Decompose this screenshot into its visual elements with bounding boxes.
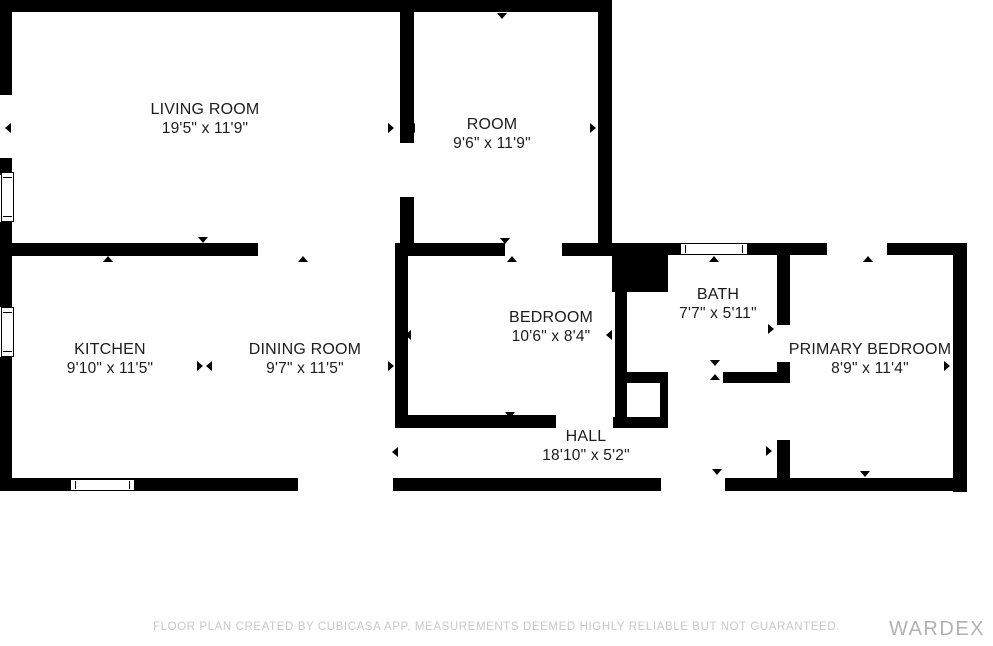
door-marker xyxy=(863,256,873,262)
room-dimensions: 9'10" x 11'5" xyxy=(20,359,200,378)
door-marker xyxy=(710,374,720,380)
room-label-bath: BATH 7'7" x 5'11" xyxy=(648,285,788,323)
door-marker xyxy=(497,13,507,19)
room-name: KITCHEN xyxy=(20,340,200,359)
room-name: PRIMARY BEDROOM xyxy=(782,340,958,359)
wall-room-right xyxy=(598,0,612,256)
door-marker xyxy=(507,256,517,262)
room-dimensions: 7'7" x 5'11" xyxy=(648,304,788,323)
room-label-room: ROOM 9'6" x 11'9" xyxy=(417,115,567,153)
room-label-kitchen: KITCHEN 9'10" x 11'5" xyxy=(20,340,200,378)
door-marker xyxy=(103,256,113,262)
door-marker xyxy=(766,446,772,456)
door-marker xyxy=(409,123,415,133)
door-marker xyxy=(298,256,308,262)
wall-left-segment xyxy=(0,222,12,307)
room-dimensions: 18'10" x 5'2" xyxy=(496,446,676,465)
door-marker xyxy=(5,123,11,133)
floor-plan: LIVING ROOM 19'5" x 11'9" ROOM 9'6" x 11… xyxy=(0,0,993,646)
room-name: HALL xyxy=(496,427,676,446)
room-label-hall: HALL 18'10" x 5'2" xyxy=(496,427,676,465)
window-living-left-upper xyxy=(1,172,14,222)
wall-left-segment xyxy=(0,0,12,95)
door-marker xyxy=(712,469,722,475)
wall-top xyxy=(0,0,612,12)
door-marker xyxy=(4,361,10,371)
door-marker xyxy=(405,330,411,340)
room-name: DINING ROOM xyxy=(215,340,395,359)
room-name: BATH xyxy=(648,285,788,304)
wall-room-bedroom-divider xyxy=(562,243,612,256)
room-name: LIVING ROOM xyxy=(55,100,355,119)
door-marker xyxy=(710,360,720,366)
door-marker xyxy=(768,324,774,334)
room-name: BEDROOM xyxy=(461,308,641,327)
window-bath-top xyxy=(680,243,748,255)
wall-bottom-right xyxy=(725,478,967,491)
door-marker xyxy=(709,256,719,262)
window-kitchen-bottom xyxy=(70,479,135,491)
wall-left-segment xyxy=(0,357,12,490)
door-marker xyxy=(590,123,596,133)
door-marker xyxy=(200,4,210,10)
room-name: ROOM xyxy=(417,115,567,134)
room-label-primary-bedroom: PRIMARY BEDROOM 8'9" x 11'4" xyxy=(782,340,958,378)
room-dimensions: 9'7" x 11'5" xyxy=(215,359,395,378)
window-kitchen-left xyxy=(1,307,14,357)
wall-bottom-left xyxy=(0,478,298,491)
door-marker xyxy=(206,361,212,371)
wall-bottom-middle xyxy=(393,478,661,491)
door-marker xyxy=(198,237,208,243)
room-dimensions: 10'6" x 8'4" xyxy=(461,327,641,346)
room-label-bedroom: BEDROOM 10'6" x 8'4" xyxy=(461,308,641,346)
wall-living-kitchen-divider xyxy=(0,243,258,256)
room-dimensions: 19'5" x 11'9" xyxy=(55,119,355,138)
door-marker xyxy=(860,471,870,477)
door-marker xyxy=(617,420,627,426)
room-dimensions: 9'6" x 11'9" xyxy=(417,134,567,153)
door-marker xyxy=(392,447,398,457)
door-marker xyxy=(500,238,510,244)
wall-room-bedroom-divider xyxy=(395,243,505,256)
wall-primary-hall xyxy=(777,440,790,490)
wall-bath-bottom xyxy=(723,372,777,383)
room-label-dining-room: DINING ROOM 9'7" x 11'5" xyxy=(215,340,395,378)
door-marker xyxy=(388,123,394,133)
room-label-living-room: LIVING ROOM 19'5" x 11'9" xyxy=(55,100,355,138)
door-marker xyxy=(505,412,515,418)
room-dimensions: 8'9" x 11'4" xyxy=(782,359,958,378)
watermark: WARDEX xyxy=(889,618,985,641)
disclaimer-text: FLOOR PLAN CREATED BY CUBICASA APP. MEAS… xyxy=(0,621,993,633)
